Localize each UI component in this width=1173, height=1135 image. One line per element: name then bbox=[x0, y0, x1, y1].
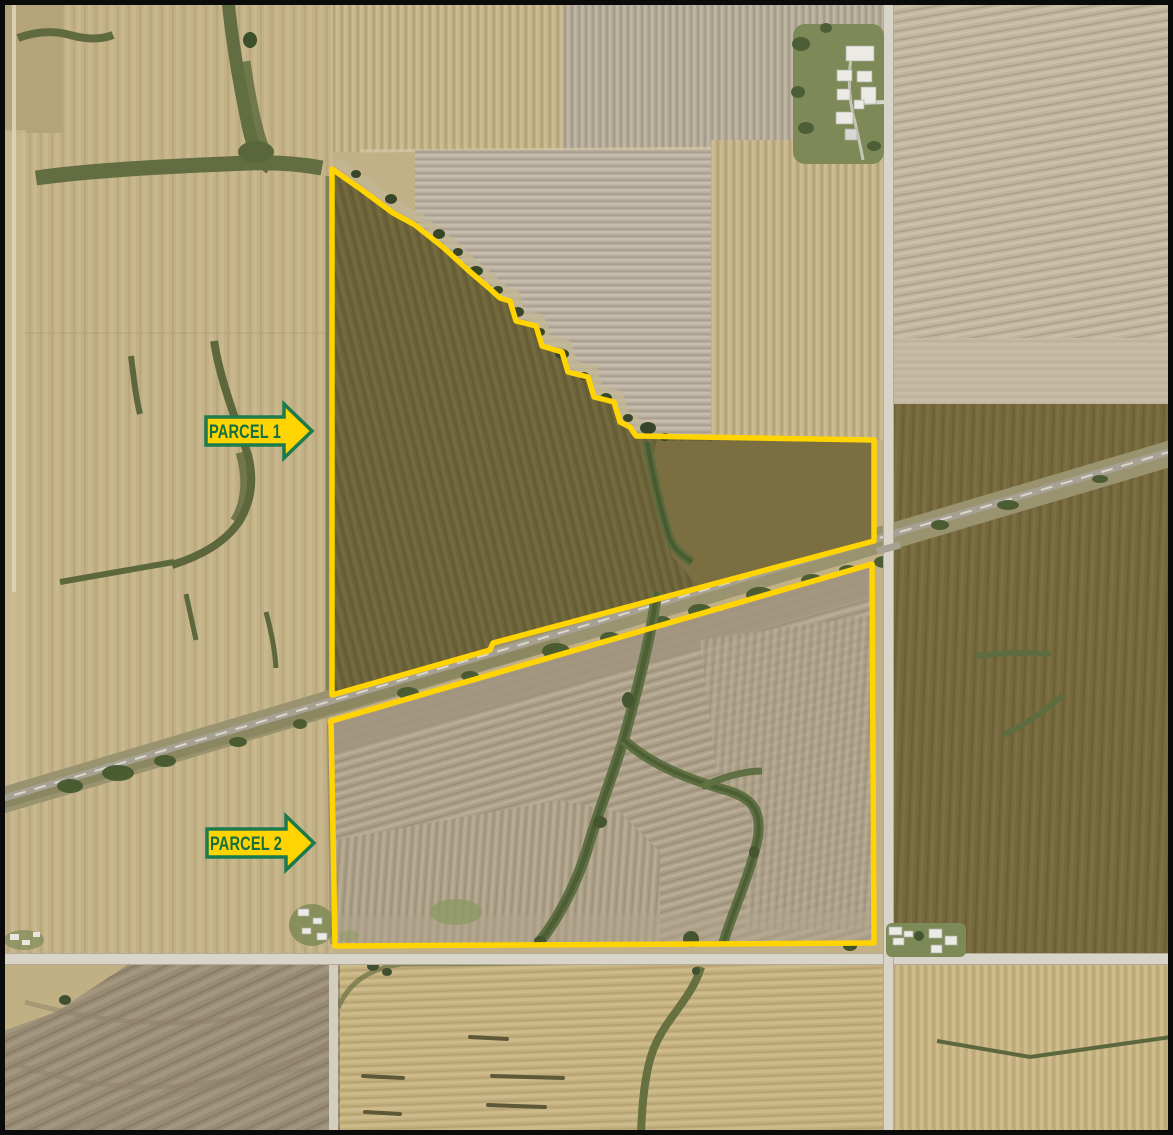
grass-patch bbox=[430, 899, 482, 925]
field-northwest-corner bbox=[0, 0, 63, 133]
grass-waterway bbox=[976, 653, 1048, 656]
field-west bbox=[0, 0, 333, 962]
field-northeast-tan bbox=[711, 140, 885, 440]
field-east-top bbox=[894, 0, 1173, 338]
farmstead-northeast bbox=[791, 23, 884, 164]
field-south-gold bbox=[340, 962, 884, 1135]
road-spur-south bbox=[329, 965, 338, 1135]
parcel-1-label: PARCEL 1 bbox=[209, 421, 281, 443]
road-vertical bbox=[883, 0, 894, 1135]
parcel-2-headland bbox=[336, 912, 871, 944]
field-north-tan bbox=[333, 0, 563, 152]
farmstead-west bbox=[289, 904, 335, 946]
farmstead-corner-west bbox=[4, 930, 44, 950]
grass-patch bbox=[339, 930, 359, 942]
road-horizontal bbox=[0, 953, 1173, 965]
aerial-basemap-svg: PARCEL 1 PARCEL 2 bbox=[0, 0, 1173, 1135]
farmstead-southeast bbox=[886, 923, 966, 957]
aerial-parcel-map: PARCEL 1 PARCEL 2 bbox=[0, 0, 1173, 1135]
parcel-2-label: PARCEL 2 bbox=[210, 833, 282, 855]
field-southeast-gold bbox=[894, 965, 1173, 1135]
field-east-band-texture bbox=[894, 338, 1173, 406]
